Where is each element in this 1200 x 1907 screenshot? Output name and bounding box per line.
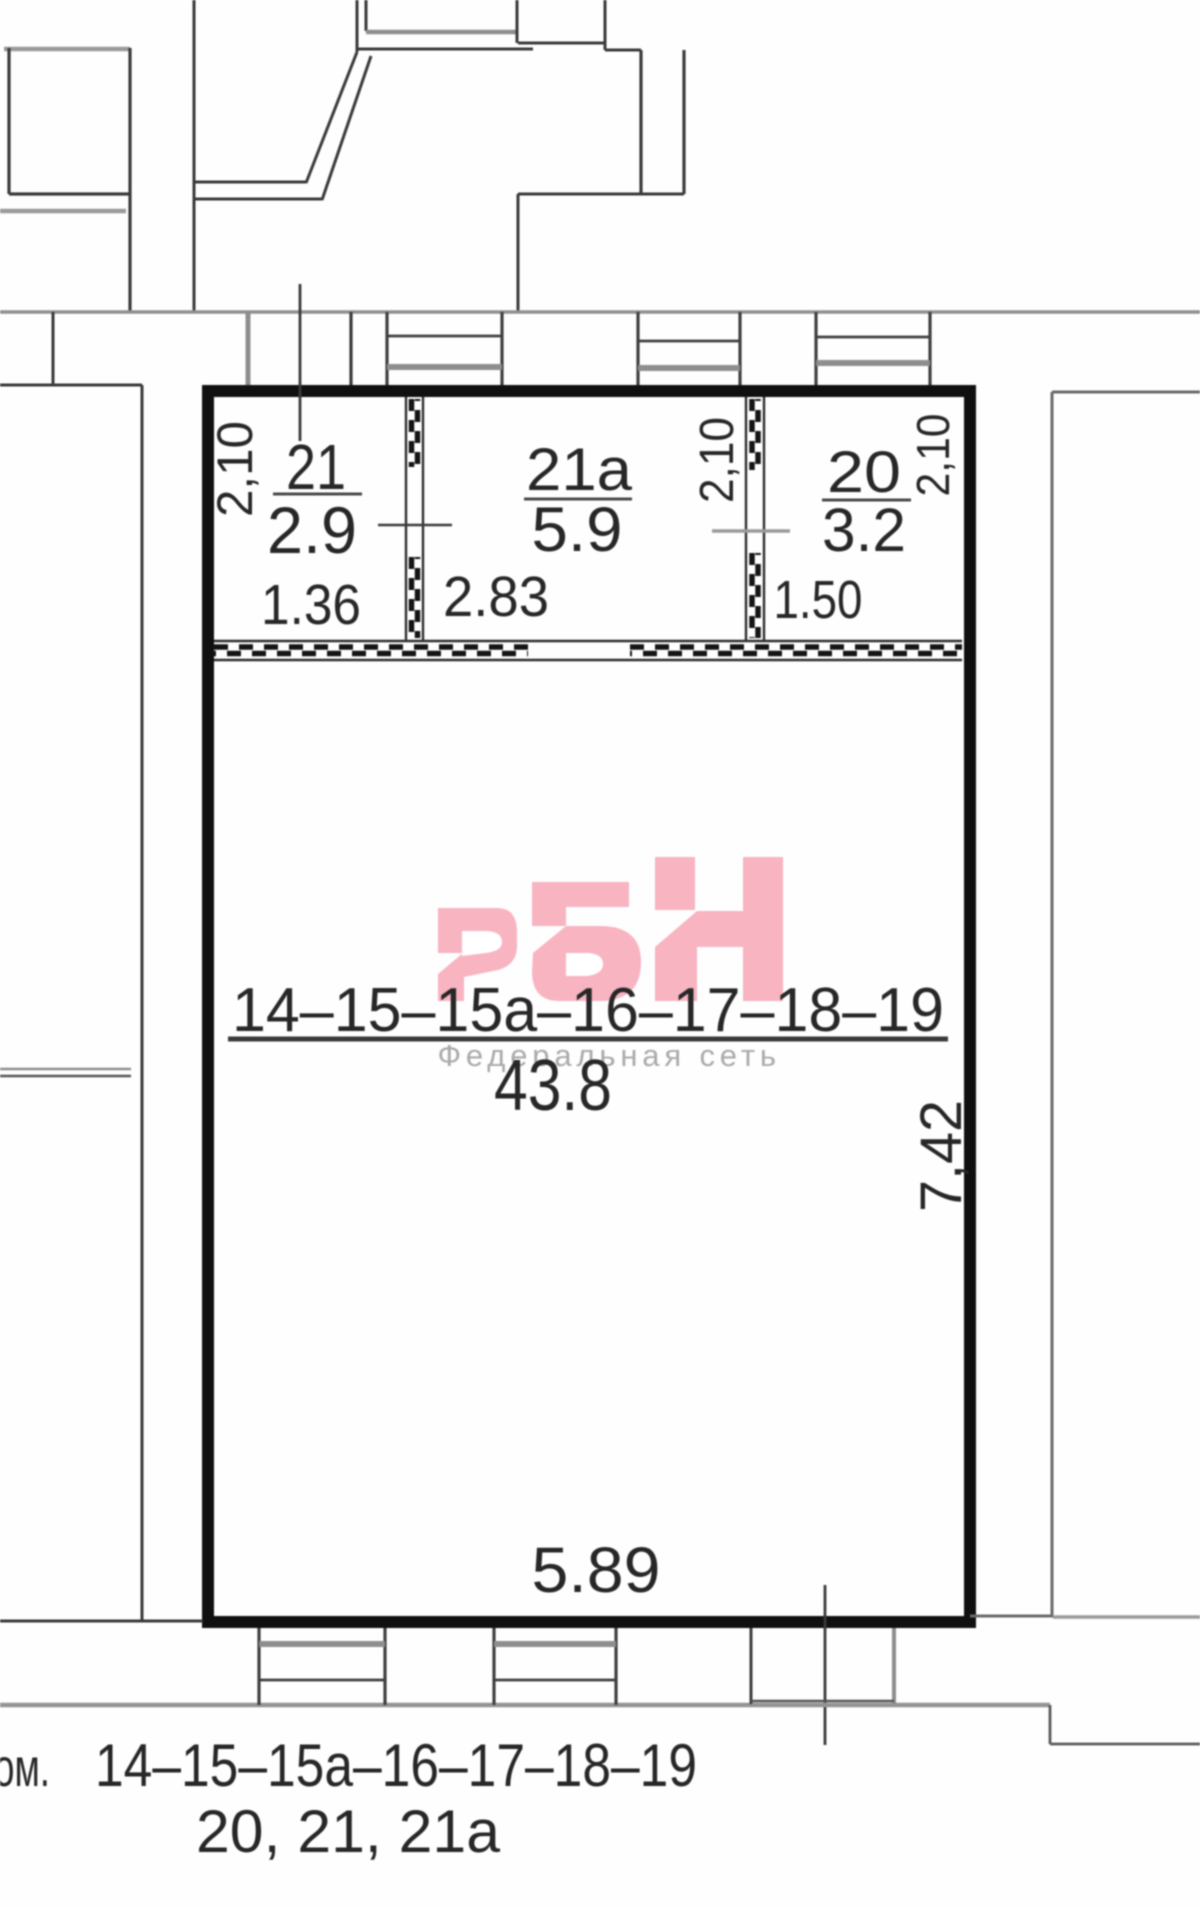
svg-text:2,10: 2,10 [691,417,744,503]
svg-text:7,42: 7,42 [909,1100,974,1212]
svg-text:20, 21, 21а: 20, 21, 21а [196,1798,501,1865]
svg-text:5.89: 5.89 [532,1534,661,1606]
svg-text:1.50: 1.50 [774,570,863,630]
svg-text:ом.: ом. [0,1738,50,1798]
svg-text:2.83: 2.83 [443,565,549,629]
svg-text:1.36: 1.36 [261,573,361,637]
svg-text:2.9: 2.9 [267,493,357,567]
svg-text:14–15–15а–16–17–18–19: 14–15–15а–16–17–18–19 [95,1732,697,1799]
svg-text:2,10: 2,10 [207,421,263,517]
svg-text:2,10: 2,10 [907,414,959,497]
svg-text:5.9: 5.9 [532,495,623,565]
svg-text:14–15–15а–16–17–18–19: 14–15–15а–16–17–18–19 [232,976,944,1045]
svg-text:21а: 21а [526,436,633,503]
svg-text:3.2: 3.2 [822,496,906,564]
svg-text:43.8: 43.8 [494,1046,612,1126]
